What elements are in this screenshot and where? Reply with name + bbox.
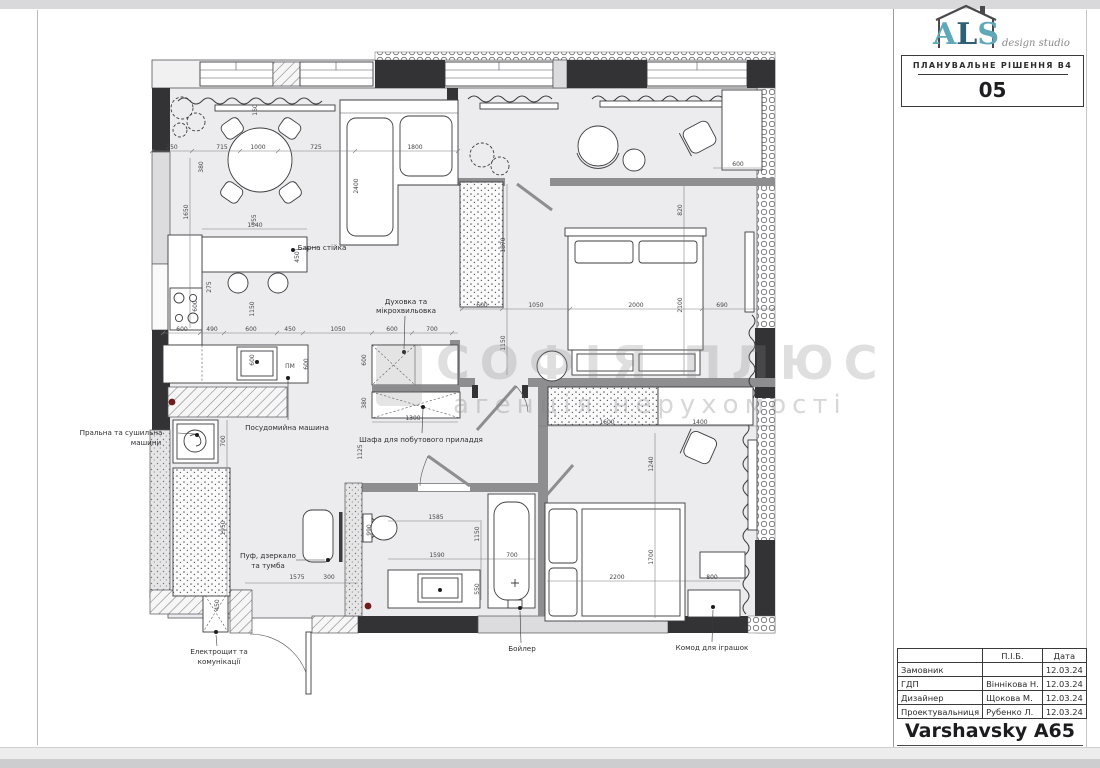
project-name: Varshavsky A65 [897,720,1083,742]
svg-text:1585: 1585 [428,514,443,521]
label-pouf-1: Пуф, дзеркало [240,551,296,560]
label-electro-2: комунікації [198,657,242,666]
wall-dark [567,60,647,88]
svg-text:1950: 1950 [220,520,227,535]
insulation-bubbles-top [375,52,775,60]
svg-text:820: 820 [677,204,684,216]
svg-text:1240: 1240 [648,456,655,471]
svg-text:490: 490 [206,326,218,333]
svg-text:800: 800 [706,574,718,581]
studio-logo: ALS design studio [908,2,1080,52]
svg-text:725: 725 [310,144,322,151]
svg-text:ALS: ALS [932,17,999,52]
svg-text:600: 600 [303,358,310,370]
svg-text:1150: 1150 [474,526,481,541]
col-person: П.І.Б. [983,649,1043,663]
svg-text:1150: 1150 [249,301,256,316]
svg-text:600: 600 [476,302,488,309]
curtain-rod [215,105,335,111]
column-hatched [273,62,300,86]
svg-text:600: 600 [192,300,199,312]
svg-text:600: 600 [386,326,398,333]
window [445,62,553,86]
svg-text:1300: 1300 [405,415,420,422]
wall-hatched-kitchen [168,387,287,417]
label-toy-dresser: Комод для іграшок [676,643,749,652]
svg-text:1870: 1870 [500,237,507,252]
svg-text:380: 380 [198,161,205,173]
logo-subtext: design studio [1002,38,1070,49]
curtain-rod [480,103,558,109]
svg-text:2000: 2000 [628,302,643,309]
svg-text:2100: 2100 [677,297,684,312]
svg-text:1600: 1600 [599,419,614,426]
signature-table: П.І.Б. Дата Замовник 12.03.24 ГДП Віннік… [897,648,1087,719]
double-bed [565,228,706,350]
logo-chimney [980,6,985,14]
svg-text:1700: 1700 [648,549,655,564]
svg-text:1590: 1590 [429,552,444,559]
table-header-row: П.І.Б. Дата [898,649,1087,663]
pouf [303,510,333,562]
svg-text:1575: 1575 [289,574,304,581]
label-household-closet: Шафа для побутового приладдя [359,435,483,444]
svg-text:1150: 1150 [500,335,507,350]
kids-bed [545,503,685,621]
outlet-marker [365,603,372,610]
svg-text:600: 600 [361,354,368,366]
svg-text:250: 250 [166,144,178,151]
svg-text:600: 600 [176,326,188,333]
page: { "title_block": { "logo_a": "A", "logo_… [0,0,1100,768]
mirror [339,512,343,562]
svg-text:600: 600 [245,326,257,333]
svg-text:300: 300 [323,574,335,581]
table-row: Проектувальниця Рубенко Л. 12.03.24 [898,705,1087,719]
tall-cabinet-oven [372,345,460,418]
svg-text:380: 380 [361,397,368,409]
svg-text:2200: 2200 [609,574,624,581]
window [647,62,747,86]
label-oven-2: мікрохвильовка [376,306,436,315]
window [200,62,273,86]
svg-text:450: 450 [284,326,296,333]
toy-dresser [688,590,740,617]
label-pm: ПМ [285,363,295,370]
label-washer-2: машини [131,438,162,447]
label-dishwasher: Посудомийна машина [245,423,329,432]
svg-text:1125: 1125 [357,444,364,459]
tv-panel [745,232,754,312]
label-washer-1: Пральна та сушильна [80,428,163,437]
svg-text:1400: 1400 [692,419,707,426]
svg-text:715: 715 [216,144,228,151]
wall-dark [375,60,445,88]
svg-text:700: 700 [220,435,227,447]
svg-text:1050: 1050 [528,302,543,309]
kitchen-sink [237,347,277,380]
svg-text:1050: 1050 [330,326,345,333]
sheet-title-box: ПЛАНУВАЛЬНЕ РІШЕННЯ В4 05 [901,55,1084,107]
bed-bench [572,350,700,375]
project-underline [897,745,1083,746]
dining-set [219,116,304,205]
wardrobe [460,182,503,307]
label-oven-1: Духовка та [385,297,427,306]
label-bar-counter: Барна стійка [298,243,347,252]
table-row: ГДП Віннікова Н. 12.03.24 [898,677,1087,691]
svg-text:600: 600 [249,354,256,366]
svg-text:700: 700 [426,326,438,333]
wall-shelf [748,440,757,530]
svg-text:1650: 1650 [183,204,190,219]
label-pouf-2: та тумба [251,561,285,570]
pouf-round [623,149,645,171]
label-electro-1: Електрощит та [190,647,248,656]
svg-text:1540: 1540 [247,222,262,229]
svg-text:1000: 1000 [250,144,265,151]
washing-machine [173,420,218,463]
desk [722,90,762,170]
entrance-door [250,632,311,694]
bar-stool [228,273,248,293]
wall-dark-bottom [358,616,478,633]
svg-text:690: 690 [716,302,728,309]
wall-concrete-bath [345,483,362,616]
svg-text:450: 450 [294,251,301,263]
svg-text:990: 990 [366,524,373,536]
svg-text:1800: 1800 [407,144,422,151]
wall-concrete-left [150,430,170,598]
svg-text:275: 275 [206,281,213,293]
label-boiler: Бойлер [508,644,536,653]
table-row: Дизайнер Щокова М. 12.03.24 [898,691,1087,705]
side-table-round [537,351,567,381]
sheet-number: 05 [979,78,1007,102]
sheet-title: ПЛАНУВАЛЬНЕ РІШЕННЯ В4 [913,61,1072,70]
svg-text:550: 550 [474,583,481,595]
svg-text:600: 600 [732,161,744,168]
svg-text:2400: 2400 [353,178,360,193]
washbasin-counter [388,570,480,608]
window [300,62,373,86]
bar-stool [268,273,288,293]
bathtub [488,494,535,608]
svg-text:450: 450 [214,599,221,611]
wall-dark [152,88,170,152]
svg-text:700: 700 [506,552,518,559]
svg-text:160: 160 [252,104,259,116]
col-date: Дата [1042,649,1086,663]
outlet-marker [169,399,176,406]
table-row: Замовник 12.03.24 [898,663,1087,677]
electrical-panel [203,592,228,632]
